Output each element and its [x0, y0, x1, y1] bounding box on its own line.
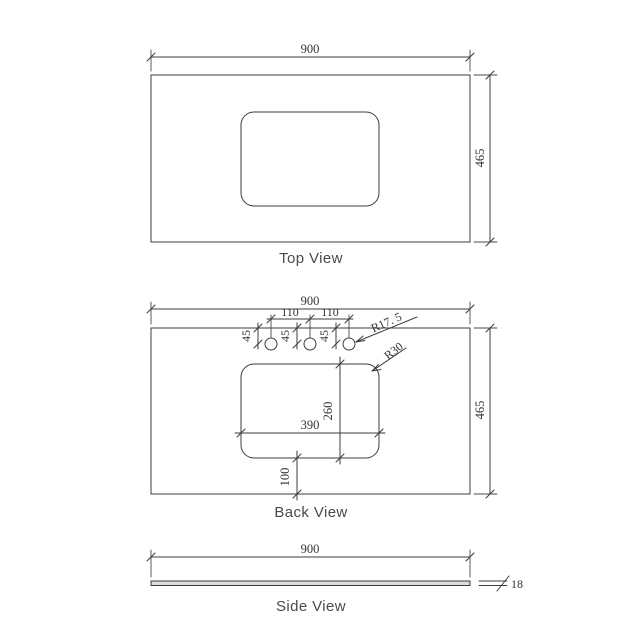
top-view-width-dimension: 900: [147, 42, 474, 71]
vanity-top-drawing: 900 465 Top View 900: [0, 0, 640, 640]
hole-setback-value-1: 45: [239, 330, 253, 342]
cutout-radius-leader: R30: [372, 339, 406, 371]
side-view-label: Side View: [276, 598, 346, 615]
top-view: 900 465 Top View: [147, 42, 497, 267]
back-width-value: 900: [301, 294, 320, 308]
hole-setback-dimension-3: 45: [317, 323, 340, 349]
hole-setback-dimension-1: 45: [239, 323, 262, 349]
hole-setback-dimension-2: 45: [278, 323, 301, 349]
back-view: 900 465 110 110 45: [147, 294, 497, 521]
cutout-radius-value: R30: [381, 339, 405, 362]
hole-setback-value-3: 45: [317, 330, 331, 342]
cutout-width-dimension: 390: [235, 418, 385, 437]
back-view-label: Back View: [274, 504, 347, 521]
faucet-hole-right: [343, 338, 355, 350]
faucet-hole-center: [304, 338, 316, 350]
hole-radius-value: R17. 5: [369, 309, 404, 335]
top-view-depth-dimension: 465: [473, 71, 497, 246]
top-width-value: 900: [301, 42, 320, 56]
top-depth-value: 465: [473, 149, 487, 168]
side-view-width-dimension: 900: [147, 542, 474, 577]
top-view-basin-outline: [241, 112, 379, 206]
thickness-dimension: 18: [479, 576, 523, 591]
hole-pitch-left-value: 110: [281, 305, 299, 319]
dim-tick: [497, 576, 509, 591]
top-view-outline: [151, 75, 470, 242]
side-width-value: 900: [301, 542, 320, 556]
cutout-width-value: 390: [301, 418, 320, 432]
top-view-label: Top View: [279, 250, 343, 267]
cutout-bottom-offset-value: 100: [278, 468, 292, 487]
back-view-depth-dimension: 465: [473, 324, 497, 498]
back-view-outline: [151, 328, 470, 494]
thickness-value: 18: [511, 577, 523, 591]
technical-drawing-page: 900 465 Top View 900: [0, 0, 640, 640]
cutout-depth-value: 260: [321, 402, 335, 421]
back-depth-value: 465: [473, 401, 487, 420]
hole-pitch-right-value: 110: [321, 305, 339, 319]
side-view: 900 18 Side View: [147, 542, 523, 615]
hole-setback-value-2: 45: [278, 330, 292, 342]
hole-radius-leader: R17. 5: [356, 309, 417, 342]
benchtop-slab-profile: [151, 581, 470, 586]
faucet-hole-left: [265, 338, 277, 350]
cutout-depth-dimension: 260: [321, 357, 344, 464]
basin-cutout-outline: [241, 364, 379, 458]
